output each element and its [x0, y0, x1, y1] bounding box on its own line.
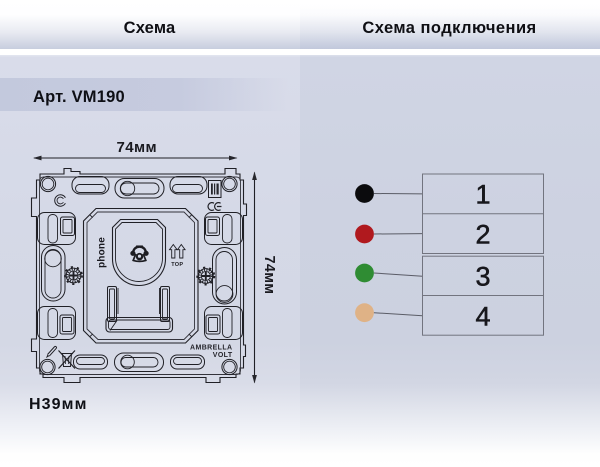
- svg-text:VOLT: VOLT: [213, 352, 233, 359]
- svg-text:TOP: TOP: [171, 262, 183, 268]
- svg-text:phone: phone: [97, 237, 108, 268]
- svg-text:2: 2: [475, 219, 490, 249]
- svg-text:1: 1: [475, 180, 490, 210]
- svg-text:4: 4: [475, 301, 490, 331]
- svg-text:3: 3: [475, 262, 490, 292]
- svg-text:74мм: 74мм: [261, 256, 277, 295]
- svg-text:74мм: 74мм: [117, 139, 157, 156]
- svg-text:AMBRELLA: AMBRELLA: [190, 345, 232, 352]
